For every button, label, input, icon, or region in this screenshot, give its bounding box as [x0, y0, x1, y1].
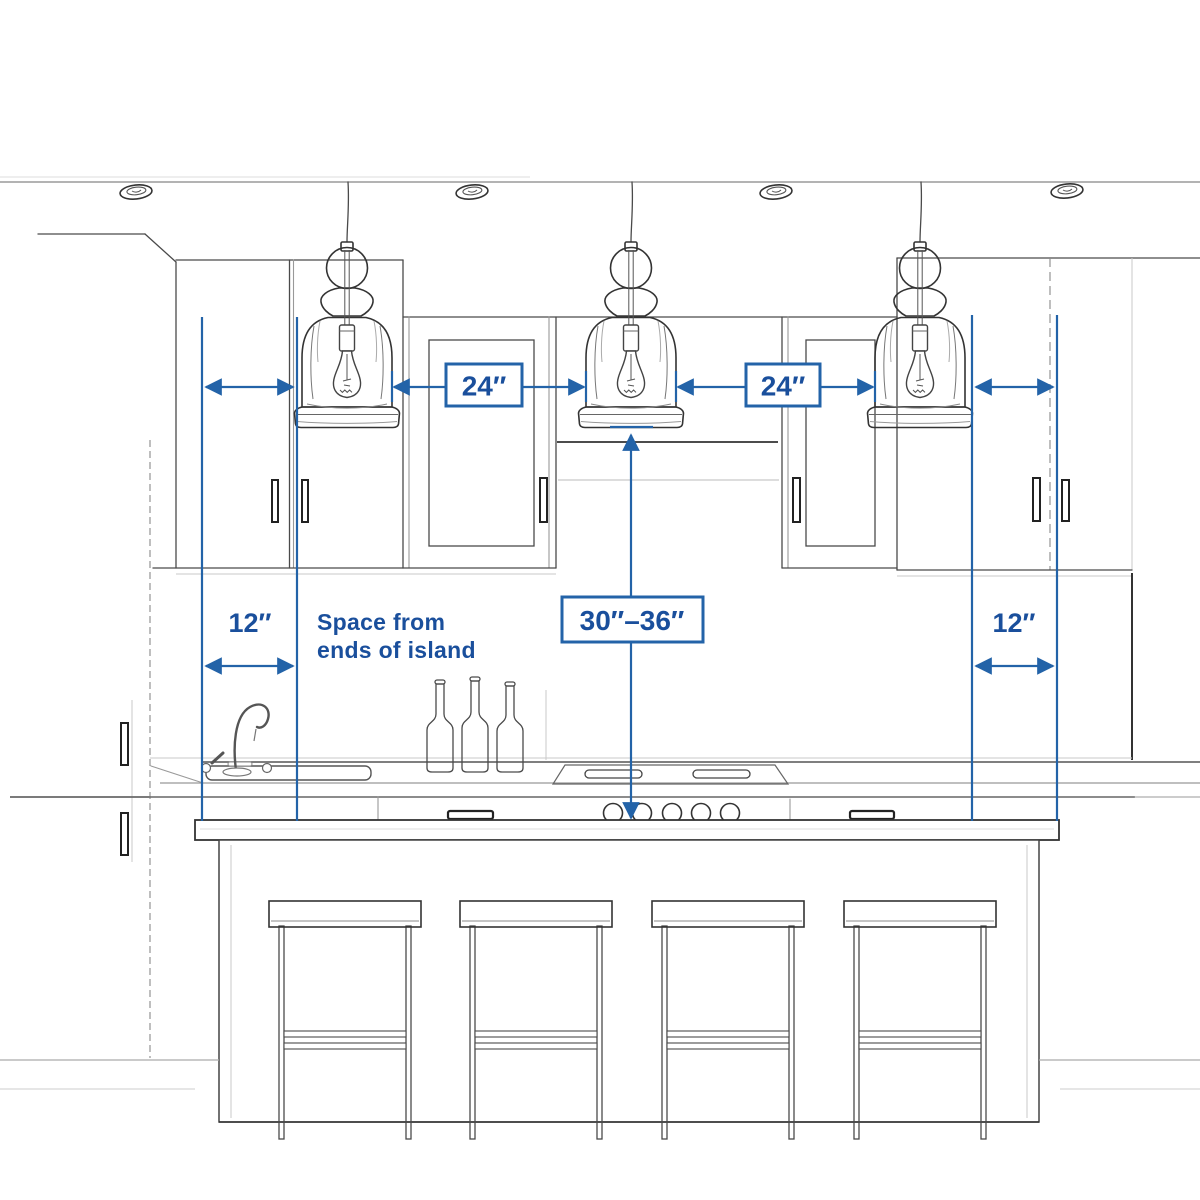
back-counter	[10, 690, 1200, 820]
drawer-handle	[850, 811, 894, 819]
faucet	[202, 705, 272, 776]
end-spacing-right-label: 12″	[993, 608, 1036, 638]
dimension-height: 30″–36″	[562, 435, 703, 818]
cabinet-handle	[540, 478, 547, 522]
cooktop	[553, 765, 788, 784]
cabinet-handle	[121, 723, 128, 765]
ceiling	[0, 177, 1200, 182]
far-left-cabinets	[121, 700, 132, 862]
cabinet-handle	[1033, 478, 1040, 521]
end-spacing-left-label: 12″	[229, 608, 272, 638]
cabinet-handle	[272, 480, 278, 522]
recessed-light-4	[1050, 182, 1083, 199]
pendant-spacing-right-label: 24″	[761, 371, 806, 402]
cooktop-grate	[585, 770, 642, 778]
dimension-pendant-spacing-right: 24″	[678, 364, 873, 406]
pendant-spacing-left-label: 24″	[462, 371, 507, 402]
cabinet-handle	[1062, 480, 1069, 521]
range-hood-valance	[557, 442, 779, 480]
cabinet-handle	[302, 480, 308, 522]
island	[195, 820, 1059, 1122]
pendant-light-1	[295, 182, 400, 428]
left-wall-soffit	[38, 234, 176, 1058]
pendant-light-3	[868, 182, 973, 428]
island-countertop	[195, 820, 1059, 840]
dimension-end-spacing-right: 12″	[976, 387, 1053, 666]
height-label: 30″–36″	[580, 605, 685, 636]
kitchen-lighting-diagram: 12″ 24″ 24″ 12″ 30″–36″ Space from ends …	[0, 0, 1200, 1200]
diagram-canvas: 12″ 24″ 24″ 12″ 30″–36″ Space from ends …	[0, 0, 1200, 1200]
dimension-end-spacing-left: 12″	[206, 387, 293, 666]
cabinet-handle	[121, 813, 128, 855]
recessed-light-3	[759, 183, 792, 200]
island-base	[219, 840, 1039, 1122]
note-space-from-ends: Space from ends of island	[317, 609, 476, 663]
cooktop-grate	[693, 770, 750, 778]
pendant-light-2	[579, 182, 684, 428]
upper-cabinet-left	[153, 260, 556, 574]
recessed-light-1	[119, 183, 152, 200]
recessed-light-2	[455, 183, 488, 200]
cabinet-handle	[793, 478, 800, 522]
note-line-1: Space from	[317, 609, 445, 635]
note-line-2: ends of island	[317, 637, 476, 663]
upper-cabinet-right	[897, 258, 1200, 576]
drawer-handle	[448, 811, 493, 819]
